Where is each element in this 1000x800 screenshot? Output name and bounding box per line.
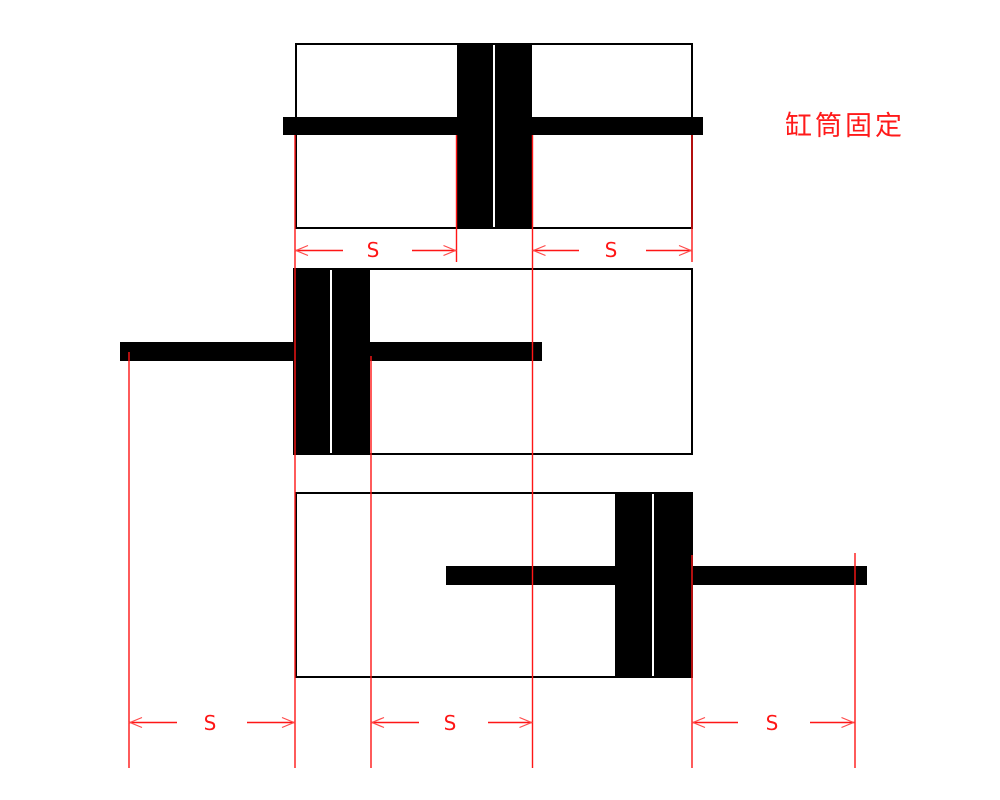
stroke-dimension-label: S bbox=[444, 713, 457, 733]
stroke-dimension-label: S bbox=[766, 713, 779, 733]
stroke-dimension-label: S bbox=[605, 240, 618, 260]
stroke-dimension-label: S bbox=[204, 713, 217, 733]
stroke-dimension-label: S bbox=[367, 240, 380, 260]
diagram-canvas: S S S S S 缸筒固定 bbox=[0, 0, 1000, 800]
cylinder-fixed-annotation: 缸筒固定 bbox=[785, 113, 905, 140]
